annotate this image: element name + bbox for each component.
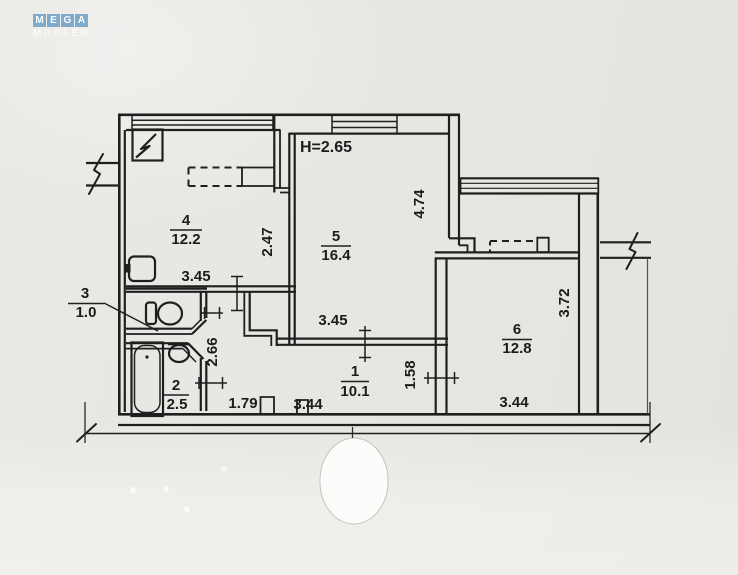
room6-top-wall	[435, 238, 579, 259]
room-label-room6: 6 12.8	[502, 321, 532, 357]
dim-living-depth: 4.74	[411, 189, 428, 219]
scanned-floor-plan-photo: M E G A MAKLER	[0, 0, 738, 575]
dim-hall-opening: 1.58	[402, 360, 419, 389]
room-number: 1	[351, 363, 359, 380]
dim-kitchen-width: 3.45	[181, 268, 210, 285]
room-area: 12.8	[502, 340, 531, 357]
toilet-wc	[146, 303, 182, 325]
room-area: 10.1	[340, 383, 369, 400]
room-label-kitchen: 4 12.2	[170, 212, 202, 248]
ceiling-height-note: H=2.65	[300, 139, 352, 156]
room-labels: 4 12.2 5 16.4 6 12.8 1 10.1 2	[68, 139, 532, 413]
vent-shaft	[133, 130, 163, 161]
right-wall-break	[600, 233, 651, 414]
room-number: 4	[182, 212, 191, 229]
wc-door-opening	[201, 307, 223, 319]
dim-room6-width: 3.44	[499, 394, 529, 411]
room-area: 12.2	[171, 231, 200, 248]
room-number: 5	[332, 228, 340, 245]
hall-step-walls	[244, 292, 276, 346]
bottom-dimension-line	[77, 402, 660, 445]
white-blot	[320, 438, 388, 524]
room-label-bath: 2 2.5	[163, 377, 189, 413]
wc-label-leader	[104, 303, 158, 331]
room-area: 2.5	[167, 396, 188, 413]
kitchen-window	[126, 115, 281, 130]
dim-room6-depth: 3.72	[556, 288, 573, 317]
white-spot	[163, 486, 169, 492]
white-spot	[221, 466, 226, 471]
dim-living-width: 3.45	[318, 312, 347, 329]
white-spot	[130, 487, 136, 493]
room-label-hall: 1 10.1	[340, 363, 369, 400]
photo-artifacts	[130, 438, 388, 524]
kitchen-sink	[126, 257, 156, 282]
room6-door-opening	[424, 372, 459, 384]
room-number: 6	[513, 321, 521, 338]
hall-top-wall	[277, 339, 448, 345]
room-area: 16.4	[321, 247, 351, 264]
dim-kitchen-side: 2.47	[259, 227, 276, 256]
kitchen-door-opening	[231, 276, 243, 311]
floor-plan-drawing: 4 12.2 5 16.4 6 12.8 1 10.1 2	[0, 0, 738, 575]
overhead-cupboard-dashed	[189, 168, 275, 187]
wc-bath-walls	[126, 289, 207, 411]
dimension-texts: 3.45 2.47 3.45 4.74 2.66 1.79 3.44 1.58 …	[181, 189, 573, 413]
dim-hall-left-width: 1.79	[228, 395, 257, 412]
room-area: 1.0	[76, 304, 97, 321]
left-wall-break	[86, 154, 119, 194]
white-spot	[184, 506, 190, 512]
room-label-wc: 3 1.0	[68, 285, 104, 321]
dim-hall-depth: 2.66	[204, 337, 221, 366]
living-room-window	[332, 116, 397, 134]
room-label-living: 5 16.4	[321, 228, 351, 264]
room-number: 3	[81, 285, 89, 302]
room-number: 2	[172, 377, 180, 394]
dim-hall-width: 3.44	[293, 396, 323, 413]
loggia-window	[460, 178, 599, 194]
room6-left-wall	[436, 258, 447, 414]
bathtub	[132, 343, 164, 417]
